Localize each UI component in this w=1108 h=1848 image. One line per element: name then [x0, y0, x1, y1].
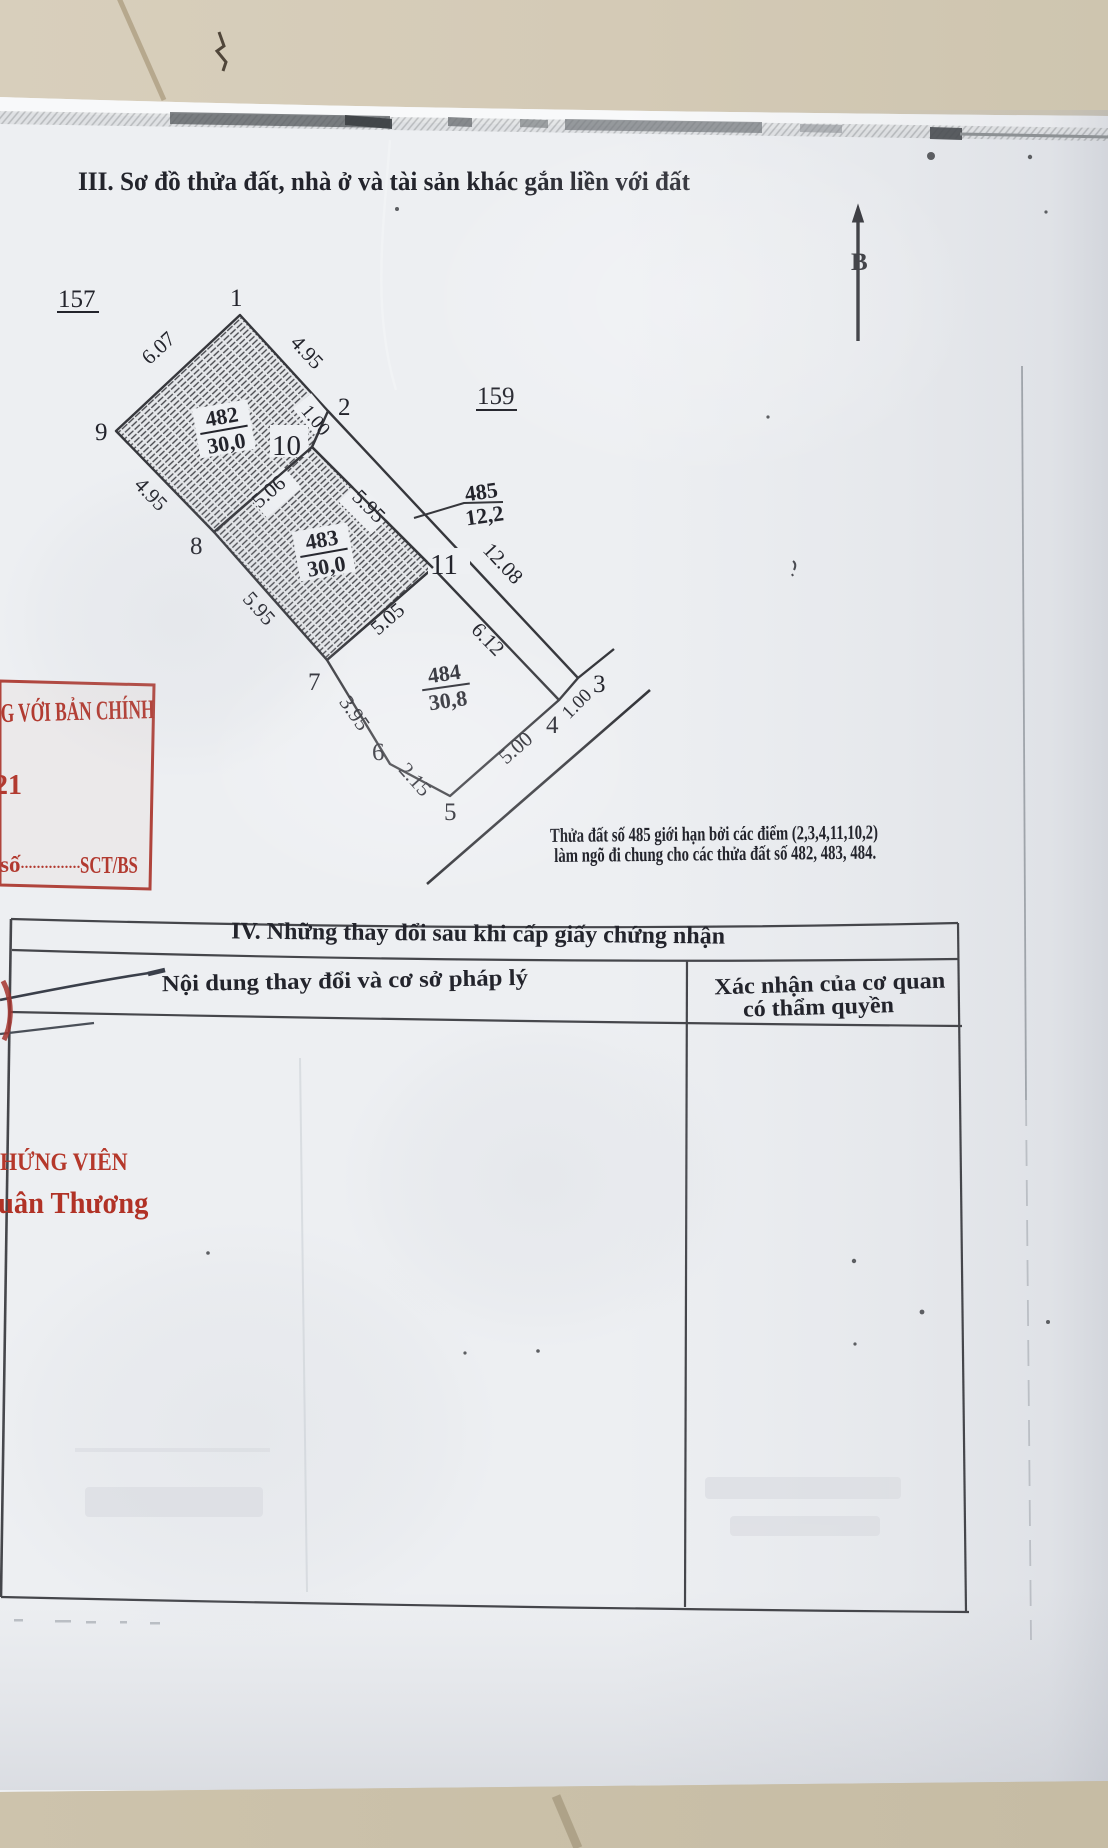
svg-text:uân Thương: uân Thương — [0, 1186, 149, 1220]
svg-text:IV. Những thay đổi sau khi cấp: IV. Những thay đổi sau khi cấp giấy chứn… — [231, 918, 725, 949]
svg-text:HỨNG VIÊN: HỨNG VIÊN — [0, 1148, 128, 1177]
svg-text:10: 10 — [272, 430, 301, 462]
svg-text:157: 157 — [58, 286, 96, 313]
svg-text:2: 2 — [338, 394, 351, 421]
svg-text:...............: ............... — [20, 851, 80, 873]
svg-text:11: 11 — [430, 549, 458, 581]
svg-text:1: 1 — [230, 285, 243, 312]
svg-text:làm ngõ đi chung cho các thửa: làm ngõ đi chung cho các thửa đất số 482… — [554, 842, 876, 867]
svg-text:số: số — [0, 852, 21, 877]
svg-text:có thẩm quyền: có thẩm quyền — [743, 992, 895, 1021]
svg-text:12,2: 12,2 — [464, 500, 506, 530]
svg-text:SCT/BS: SCT/BS — [80, 853, 138, 878]
svg-text:21: 21 — [0, 770, 22, 801]
svg-text:9: 9 — [95, 419, 108, 446]
